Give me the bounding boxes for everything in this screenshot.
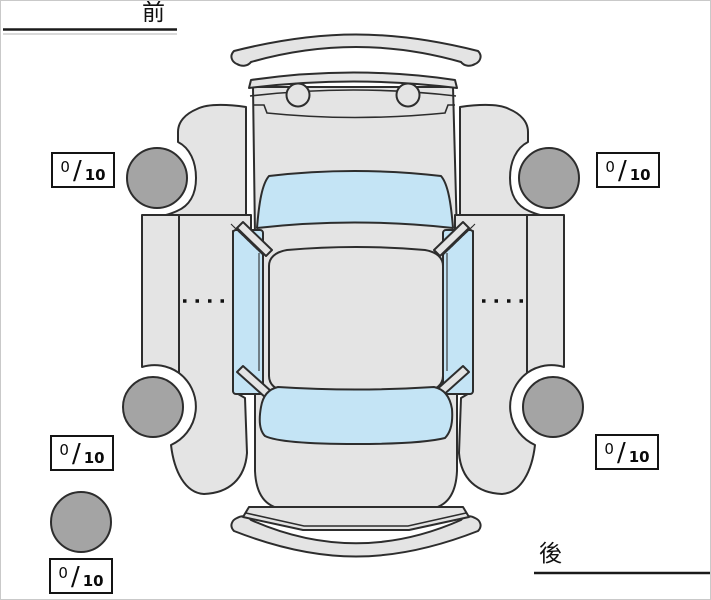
tread-max: 10: [630, 168, 651, 183]
tread-rating-spare: 0 / 10: [49, 558, 113, 594]
tread-score: 0: [60, 160, 70, 175]
car-top-view-drawing: [1, 1, 711, 600]
left-headlight-icon: [287, 84, 310, 107]
tread-rating-front-right: 0 / 10: [596, 152, 660, 188]
tread-separator: /: [71, 564, 80, 590]
rear-left-tire: [123, 377, 183, 437]
tread-max: 10: [84, 451, 105, 466]
tread-score: 0: [59, 443, 69, 458]
front-cowl-strip: [249, 73, 457, 89]
car-condition-diagram: 前 後 0 / 10 0 / 10 0 / 10 0 / 10 0 / 10: [0, 0, 711, 600]
tread-rating-rear-right: 0 / 10: [595, 434, 659, 470]
tread-separator: /: [72, 441, 81, 467]
rear-window: [260, 387, 452, 444]
tread-score: 0: [58, 566, 68, 581]
tread-max: 10: [83, 574, 104, 589]
tread-max: 10: [629, 450, 650, 465]
right-headlight-icon: [397, 84, 420, 107]
tread-separator: /: [617, 440, 626, 466]
tread-rating-front-left: 0 / 10: [51, 152, 115, 188]
tread-score: 0: [604, 442, 614, 457]
tread-score: 0: [605, 160, 615, 175]
front-left-tire: [127, 148, 187, 208]
rear-label: 後: [539, 542, 562, 567]
spare-tire: [51, 492, 111, 552]
tread-separator: /: [618, 158, 627, 184]
tread-max: 10: [85, 168, 106, 183]
left-side-panels: [123, 105, 272, 494]
tread-separator: /: [73, 158, 82, 184]
roof-panel: [269, 247, 443, 395]
front-bumper: [231, 35, 480, 66]
windshield: [257, 171, 453, 228]
tread-rating-rear-left: 0 / 10: [50, 435, 114, 471]
front-label: 前: [142, 1, 165, 26]
left-rocker-panel: [142, 215, 179, 373]
